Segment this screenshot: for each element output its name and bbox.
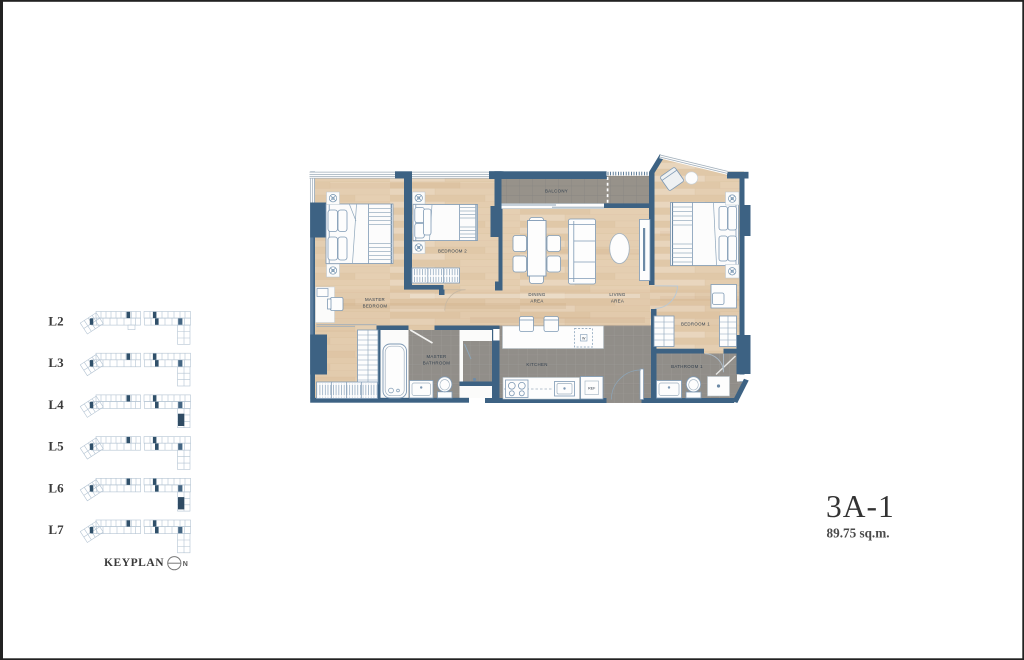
svg-text:W: W [582, 337, 586, 341]
svg-text:LIVING: LIVING [609, 292, 625, 297]
svg-text:L6: L6 [48, 480, 64, 495]
svg-text:BALCONY: BALCONY [545, 189, 568, 194]
svg-text:BEDROOM 2: BEDROOM 2 [438, 249, 467, 254]
svg-text:DINING: DINING [528, 292, 545, 297]
svg-text:89.75 sq.m.: 89.75 sq.m. [827, 526, 890, 541]
svg-text:N: N [183, 561, 188, 568]
svg-text:KITCHEN: KITCHEN [526, 362, 547, 367]
svg-text:BEDROOM 1: BEDROOM 1 [681, 322, 710, 327]
svg-text:L7: L7 [48, 522, 64, 537]
svg-text:KEYPLAN: KEYPLAN [104, 557, 164, 569]
svg-text:L2: L2 [48, 314, 63, 329]
svg-text:BATHROOM: BATHROOM [423, 361, 450, 366]
svg-text:AREA: AREA [611, 299, 624, 304]
svg-text:L3: L3 [48, 355, 64, 370]
svg-text:BATHROOM 1: BATHROOM 1 [671, 364, 703, 369]
svg-text:3A-1: 3A-1 [826, 489, 895, 524]
svg-text:BEDROOM: BEDROOM [363, 304, 388, 309]
svg-text:MASTER: MASTER [365, 297, 385, 302]
svg-text:L4: L4 [48, 397, 64, 412]
svg-text:AREA: AREA [530, 299, 543, 304]
svg-text:L5: L5 [48, 439, 64, 454]
svg-text:MASTER: MASTER [426, 354, 446, 359]
svg-text:REF: REF [588, 387, 596, 391]
